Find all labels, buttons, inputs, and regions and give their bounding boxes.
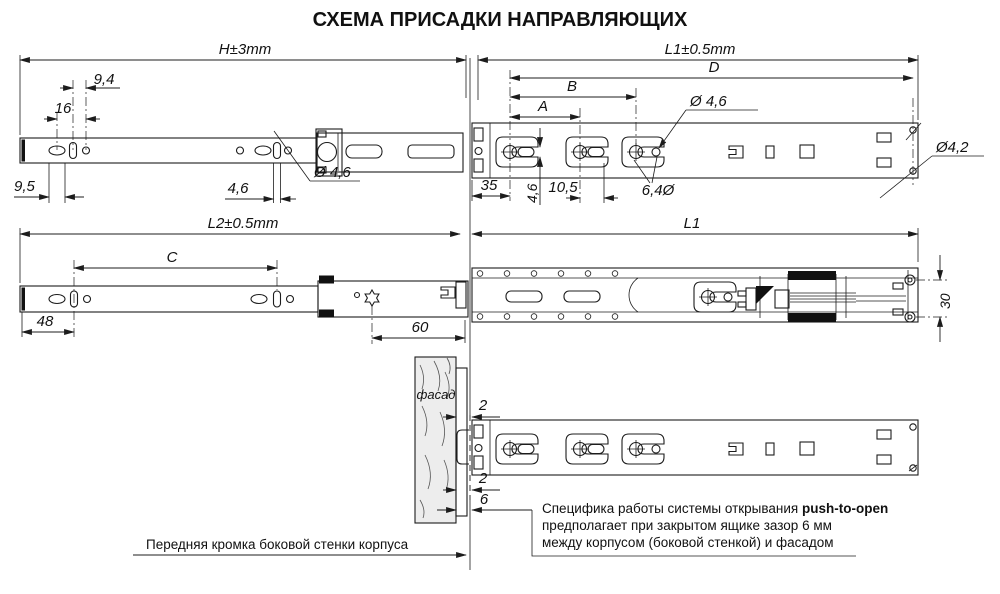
dim-l2-label: L2±0.5mm xyxy=(208,215,279,232)
dim-gap-6-label: 6 xyxy=(480,491,489,508)
keyhole-slot-mid xyxy=(694,282,736,312)
top-right-rail-view: L1±0.5mm D B A 35 4,6 10,5 6,4Ø Ø 4,6 xyxy=(472,41,984,205)
mounting-clip-bottom xyxy=(319,310,334,318)
note-line-3: между корпусом (боковой стенкой) и фасад… xyxy=(542,535,834,550)
dim-4-6-label: 4,6 xyxy=(228,180,250,197)
push-to-open-note: Специфика работы системы открывания push… xyxy=(532,501,888,556)
facade-board xyxy=(415,357,456,523)
callout-dia-4-6-left: Ø 4,6 xyxy=(313,164,351,181)
mounting-clip-top xyxy=(319,276,334,284)
dim-gap-2-bottom-label: 2 xyxy=(478,470,488,487)
dim-4-6-vert-label: 4,6 xyxy=(524,183,540,203)
front-edge-label: Передняя кромка боковой стенки корпуса xyxy=(146,537,409,552)
bottom-facade-view: фасад 2 2 6 xyxy=(415,357,918,523)
dim-d-label: D xyxy=(709,59,720,76)
dim-h-label: H±3mm xyxy=(219,41,271,58)
dim-48-label: 48 xyxy=(37,313,54,330)
facade-edge-strip xyxy=(456,368,467,516)
drilling-scheme-drawing: СХЕМА ПРИСАДКИ НАПРАВЛЯЮЩИХ H±3mm xyxy=(0,0,1000,589)
dim-35-label: 35 xyxy=(481,177,498,194)
rail-behind-facade-view xyxy=(472,420,918,475)
dim-b-label: B xyxy=(567,78,577,95)
dim-30-label: 30 xyxy=(937,293,953,309)
dim-l1-05-label: L1±0.5mm xyxy=(665,41,736,58)
dim-9-4-label: 9,4 xyxy=(94,71,115,88)
callout-6-4-label: 6,4Ø xyxy=(642,182,676,199)
top-left-rail-view: H±3mm 9,4 16 xyxy=(14,41,466,203)
cabinet-rail-holes-view xyxy=(472,123,918,178)
facade-label: фасад xyxy=(416,387,455,402)
callout-dia-4-2: Ø4,2 xyxy=(935,139,969,156)
drawer-rail-body-2 xyxy=(318,281,468,317)
dim-c-label: C xyxy=(167,249,178,266)
page-title: СХЕМА ПРИСАДКИ НАПРАВЛЯЮЩИХ xyxy=(313,9,688,31)
middle-right-rail-view: L1 xyxy=(472,215,953,342)
callout-dia-4-6-right: Ø 4,6 xyxy=(689,93,727,110)
dim-16-label: 16 xyxy=(55,100,72,117)
dim-a-label: A xyxy=(537,98,548,115)
front-edge-note: Передняя кромка боковой стенки корпуса xyxy=(133,537,466,555)
note-line-2: предполагает при закрытом ящике зазор 6 … xyxy=(542,518,832,533)
dim-10-5-label: 10,5 xyxy=(548,179,578,196)
dim-60-label: 60 xyxy=(412,319,429,336)
dim-gap-2-top-label: 2 xyxy=(478,397,488,414)
torx-star-hole-icon xyxy=(365,290,379,306)
dim-l1-label: L1 xyxy=(684,215,701,232)
dim-9-5-label: 9,5 xyxy=(14,178,36,195)
middle-left-rail-view: L2±0.5mm C 48 60 xyxy=(20,215,468,344)
extended-slide-body xyxy=(472,268,918,322)
drilling-scheme-page: СХЕМА ПРИСАДКИ НАПРАВЛЯЮЩИХ H±3mm xyxy=(0,0,1000,589)
note-line-1: Специфика работы системы открывания push… xyxy=(542,501,888,516)
